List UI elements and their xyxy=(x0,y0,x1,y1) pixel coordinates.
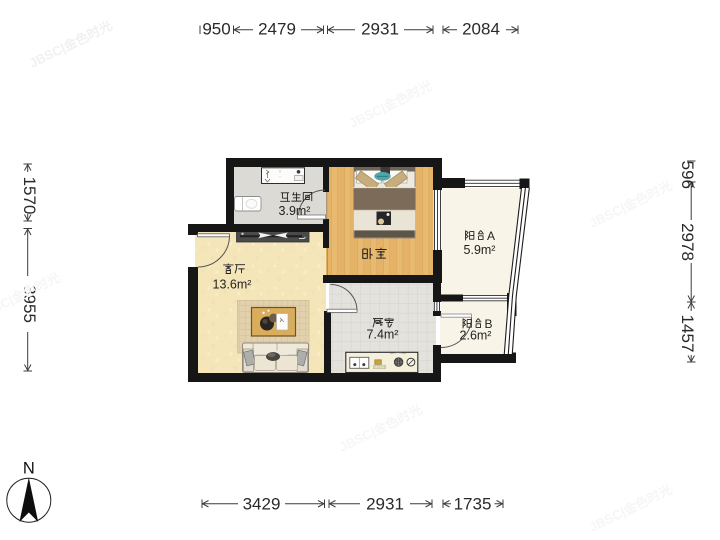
svg-text:N: N xyxy=(23,460,35,478)
svg-text:3.9m²: 3.9m² xyxy=(279,204,311,218)
svg-text:13.6m²: 13.6m² xyxy=(213,278,252,292)
svg-text:A: A xyxy=(487,229,495,243)
svg-text:1570: 1570 xyxy=(20,177,39,215)
svg-text:2931: 2931 xyxy=(361,20,399,39)
svg-text:596: 596 xyxy=(678,161,697,189)
svg-text:7.4m²: 7.4m² xyxy=(367,327,399,341)
svg-text:2479: 2479 xyxy=(258,20,296,39)
svg-text:1735: 1735 xyxy=(454,495,492,514)
svg-text:3429: 3429 xyxy=(243,495,281,514)
svg-text:2.6m²: 2.6m² xyxy=(460,328,492,342)
svg-text:2978: 2978 xyxy=(678,223,697,261)
svg-text:2084: 2084 xyxy=(462,20,500,39)
svg-text:5.9m²: 5.9m² xyxy=(464,243,496,257)
svg-text:950: 950 xyxy=(202,20,230,39)
svg-text:1457: 1457 xyxy=(678,315,697,353)
svg-text:2931: 2931 xyxy=(366,495,404,514)
